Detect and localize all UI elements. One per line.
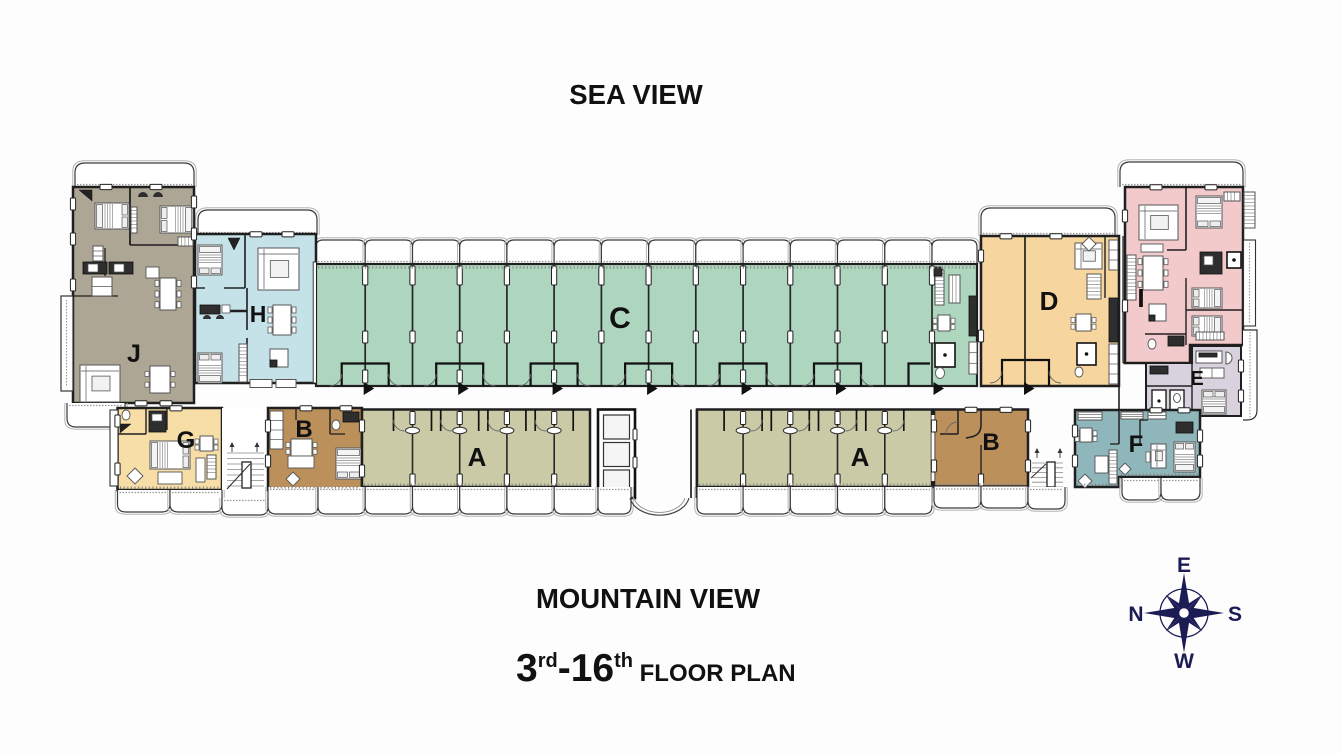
- svg-text:G: G: [177, 427, 196, 454]
- svg-text:A: A: [468, 442, 487, 472]
- svg-text:W: W: [1174, 650, 1194, 673]
- svg-text:S: S: [1228, 603, 1242, 626]
- svg-text:E: E: [1190, 368, 1203, 390]
- svg-text:J: J: [127, 340, 141, 368]
- svg-text:H: H: [250, 301, 267, 327]
- svg-text:C: C: [609, 302, 631, 335]
- svg-text:B: B: [982, 429, 999, 456]
- svg-text:MOUNTAIN VIEW: MOUNTAIN VIEW: [536, 583, 760, 614]
- svg-text:A: A: [851, 442, 870, 472]
- svg-text:I: I: [1137, 283, 1144, 313]
- svg-text:F: F: [1129, 431, 1144, 458]
- svg-text:N: N: [1128, 603, 1143, 626]
- svg-text:SEA VIEW: SEA VIEW: [569, 79, 702, 110]
- svg-text:B: B: [295, 416, 312, 443]
- svg-text:D: D: [1040, 286, 1059, 316]
- svg-text:E: E: [1177, 554, 1191, 577]
